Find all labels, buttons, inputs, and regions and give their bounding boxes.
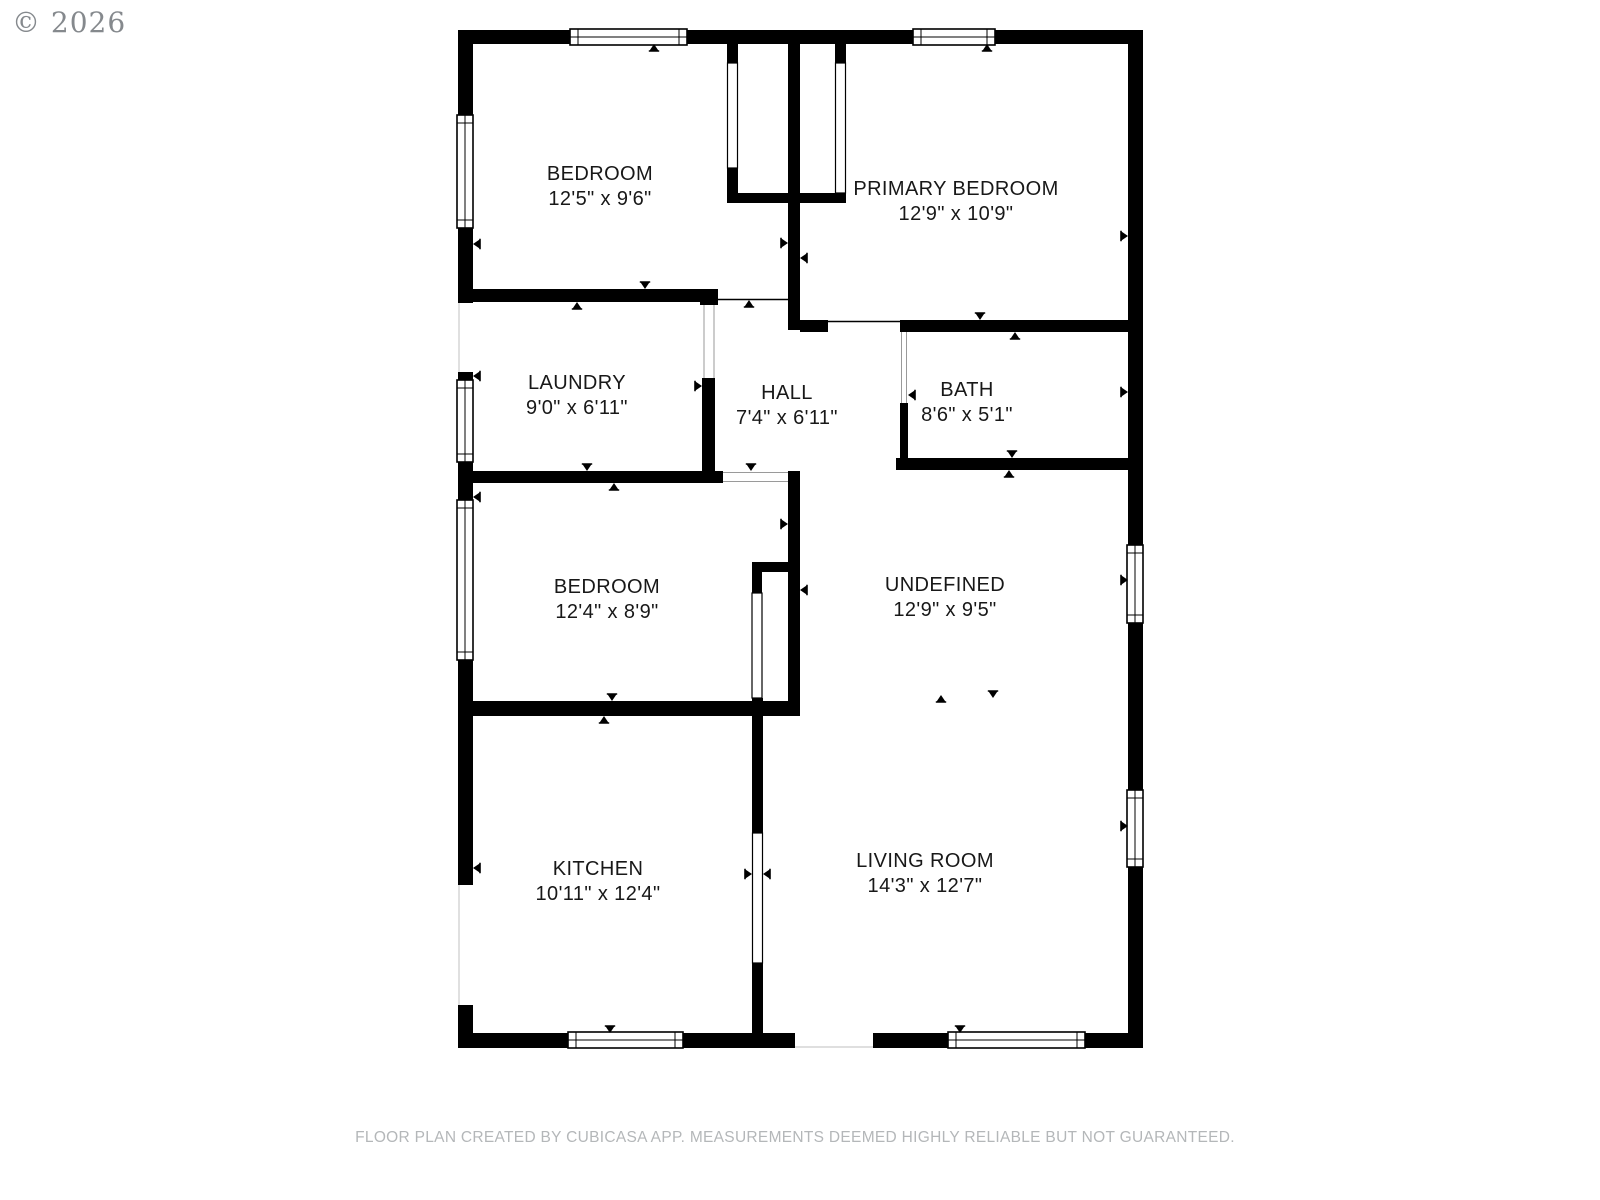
room-dims: 12'9" x 9'5" bbox=[893, 599, 996, 621]
wall-segment bbox=[835, 44, 846, 63]
cased-opening bbox=[753, 833, 763, 963]
window bbox=[1127, 545, 1143, 623]
window bbox=[457, 500, 473, 660]
room-name: PRIMARY BEDROOM bbox=[853, 178, 1058, 200]
room-name: LIVING ROOM bbox=[856, 850, 994, 872]
room-dims: 12'9" x 10'9" bbox=[899, 203, 1014, 225]
door-opening bbox=[795, 1033, 873, 1049]
wall-segment bbox=[752, 572, 762, 593]
room-name: LAUNDRY bbox=[528, 372, 626, 394]
window bbox=[457, 380, 473, 462]
wall-segment bbox=[702, 378, 715, 477]
room-dims: 9'0" x 6'11" bbox=[526, 397, 628, 419]
door-opening bbox=[458, 303, 474, 372]
room-dims: 7'4" x 6'11" bbox=[736, 407, 838, 429]
window bbox=[457, 115, 473, 228]
copyright-watermark: © 2026 bbox=[12, 6, 126, 39]
window bbox=[913, 29, 995, 45]
room-dims: 10'11" x 12'4" bbox=[536, 883, 661, 905]
room-name: BEDROOM bbox=[547, 163, 653, 185]
room-dims: 12'5" x 9'6" bbox=[548, 188, 651, 210]
wall-segment bbox=[788, 471, 800, 716]
room-dims: 14'3" x 12'7" bbox=[868, 875, 983, 897]
window bbox=[948, 1032, 1085, 1048]
wall-segment bbox=[896, 458, 1143, 470]
wall-segment bbox=[458, 30, 1143, 44]
wall-segment bbox=[727, 44, 738, 63]
room-name: KITCHEN bbox=[553, 858, 644, 880]
closet-sliding-door bbox=[836, 63, 846, 193]
room-name: BATH bbox=[940, 379, 993, 401]
footer-disclaimer: FLOOR PLAN CREATED BY CUBICASA APP. MEAS… bbox=[355, 1129, 1235, 1146]
wall-segment bbox=[752, 562, 792, 572]
wall-segment bbox=[900, 320, 1143, 332]
closet-sliding-door bbox=[728, 63, 738, 168]
floorplan-canvas: © 2026 bbox=[0, 0, 1600, 1200]
wall-segment bbox=[1128, 30, 1143, 1048]
window bbox=[568, 1032, 683, 1048]
closet-sliding-door bbox=[752, 593, 762, 698]
room-name: UNDEFINED bbox=[885, 574, 1005, 596]
wall-segment bbox=[458, 289, 713, 302]
room-name: HALL bbox=[761, 382, 813, 404]
room-name: BEDROOM bbox=[554, 576, 660, 598]
wall-segment bbox=[458, 471, 723, 483]
wall-segment bbox=[727, 168, 738, 195]
wall-segment bbox=[458, 701, 800, 716]
window bbox=[570, 29, 687, 45]
wall-segment bbox=[752, 698, 763, 833]
floorplan-page: © 2026 bbox=[0, 0, 1600, 1200]
wall-segment bbox=[727, 193, 790, 203]
door-opening bbox=[458, 885, 474, 1005]
wall-segment bbox=[788, 44, 800, 330]
wall-segment bbox=[752, 963, 763, 1040]
wall-segment bbox=[800, 193, 846, 203]
room-dims: 12'4" x 8'9" bbox=[555, 601, 658, 623]
wall-segment bbox=[800, 320, 828, 332]
wall-segment bbox=[700, 289, 718, 305]
room-dims: 8'6" x 5'1" bbox=[921, 404, 1013, 426]
window bbox=[1127, 790, 1143, 867]
